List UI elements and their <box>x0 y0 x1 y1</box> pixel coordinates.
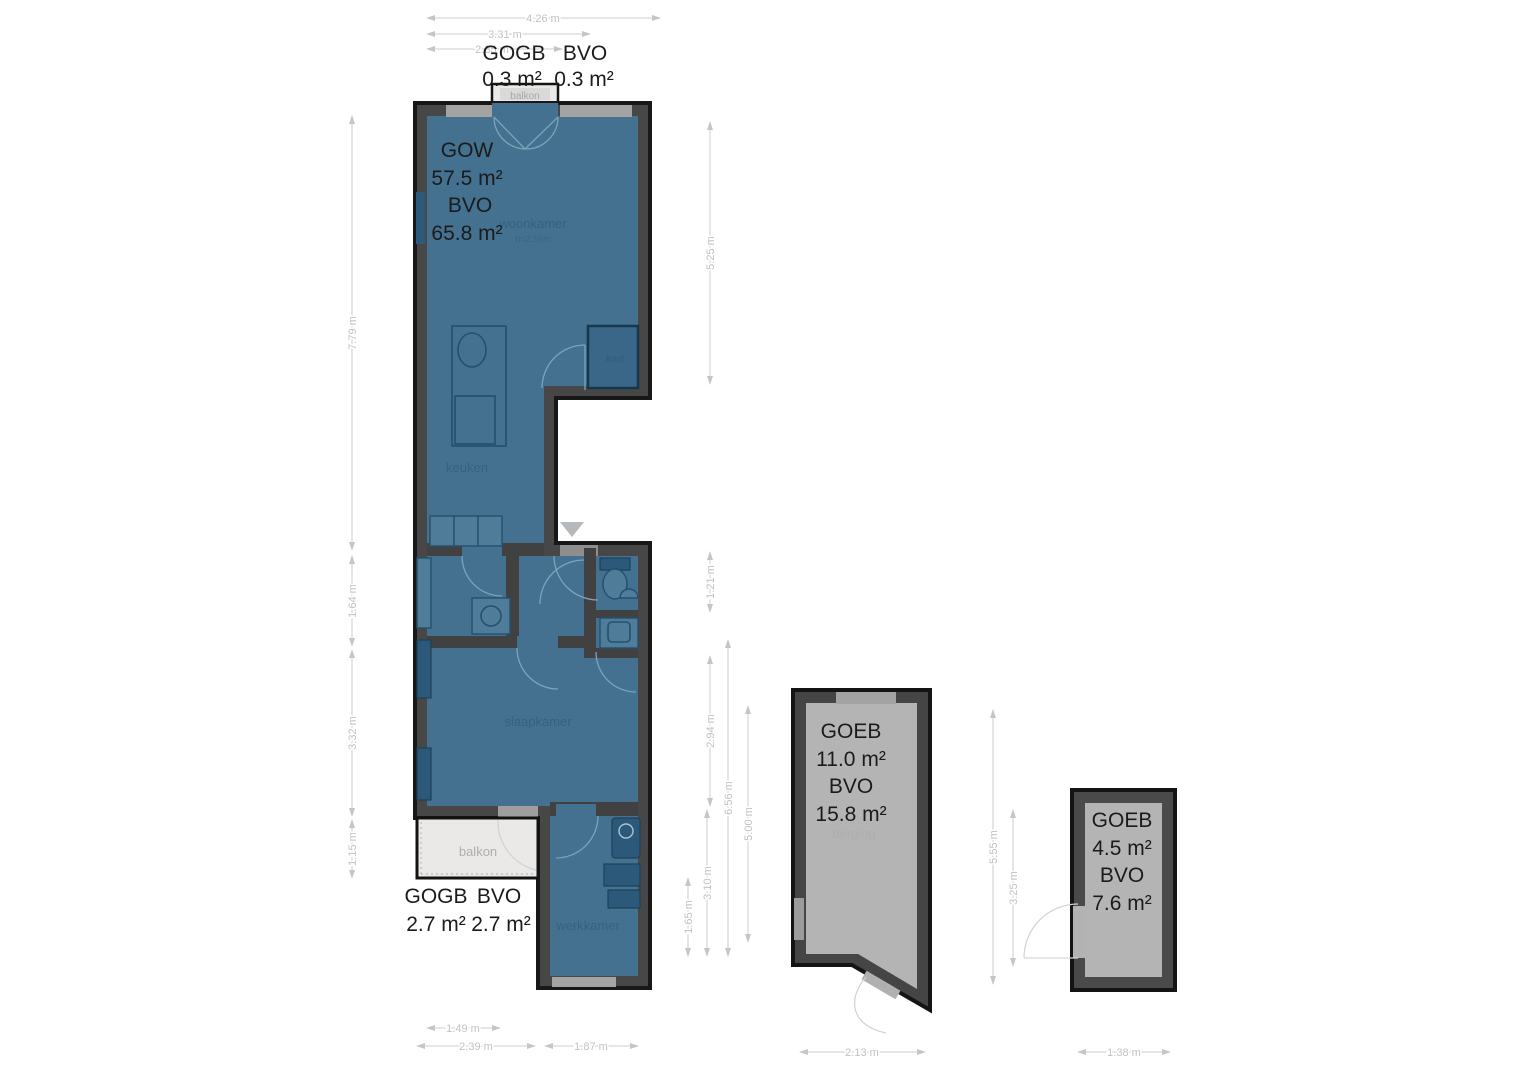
woonkamer-label: woonkamer <box>498 216 567 231</box>
dim-bottom-2: 2.39 m <box>417 1041 535 1053</box>
dim-left-3: 3.32 m <box>347 650 359 816</box>
werkkamer-label: werkkamer <box>555 918 620 933</box>
dim-left-4: 1.15 m <box>347 820 359 878</box>
dim-right-4: 6.56 m <box>723 640 735 956</box>
slaapkamer-label: slaapkamer <box>504 714 572 729</box>
hall-cabinets <box>430 516 502 546</box>
dim-bottom-1: 1.49 m <box>427 1023 500 1035</box>
svg-text:1.87 m: 1.87 m <box>574 1041 608 1053</box>
svg-text:1.21 m: 1.21 m <box>705 565 717 599</box>
dim-storage-bottom: 2.13 m <box>800 1047 925 1059</box>
gow-label: GOW <box>441 139 494 162</box>
storage-plan: GOEB 11.0 m² BVO 15.8 m² berging h=2.69m… <box>793 690 1020 1059</box>
svg-text:7.79 m: 7.79 m <box>347 316 359 350</box>
shed-goeb-value: 4.5 m² <box>1092 837 1152 860</box>
bottom-gogb-label: GOGB <box>404 885 467 908</box>
svg-text:1.15 m: 1.15 m <box>347 832 359 866</box>
dim-left-2: 1.64 m <box>347 556 359 646</box>
balkon-top-label: balkon <box>510 91 539 102</box>
top-bvo-value: 0.3 m² <box>554 68 614 91</box>
balkon-bottom-label: balkon <box>459 844 497 859</box>
svg-text:3.31 m: 3.31 m <box>488 29 522 41</box>
storage-window-top <box>836 692 896 704</box>
svg-text:1.38 m: 1.38 m <box>1107 1047 1141 1059</box>
berging-label: berging <box>832 826 875 841</box>
bvo-label: BVO <box>448 194 492 217</box>
balcony-bottom-door <box>498 806 538 818</box>
storage-goeb-label: GOEB <box>821 720 882 743</box>
balcony-door-opening <box>492 103 558 117</box>
bvo-value: 65.8 m² <box>431 222 502 245</box>
dim-shed-bottom: 1.38 m <box>1078 1047 1170 1059</box>
svg-text:1.49 m: 1.49 m <box>446 1023 480 1035</box>
top-gogb-label: GOGB <box>482 42 545 65</box>
svg-text:5.25 m: 5.25 m <box>705 236 717 270</box>
dim-top-2: 3.31 m <box>427 29 590 41</box>
dim-storage-right-1: 5.55 m <box>988 710 1000 984</box>
svg-text:4.26 m: 4.26 m <box>526 13 560 25</box>
svg-text:5.55 m: 5.55 m <box>988 830 1000 864</box>
radiator <box>416 192 425 244</box>
svg-text:3.25 m: 3.25 m <box>1008 871 1020 905</box>
shed-bvo-label: BVO <box>1100 864 1144 887</box>
shed-door-swing <box>1024 904 1078 958</box>
entrance-arrow-icon <box>560 522 584 537</box>
gow-value: 57.5 m² <box>431 167 502 190</box>
berging-height-label: h=2.69m <box>836 843 871 853</box>
dim-right-2: 1.21 m <box>705 552 717 612</box>
svg-text:2.13 m: 2.13 m <box>845 1047 879 1059</box>
shed-door <box>1073 906 1085 958</box>
main-apartment-plan: balkon <box>415 84 650 988</box>
window-top-right <box>560 105 632 117</box>
dim-right-3: 2.94 m <box>705 656 717 806</box>
woonkamer-height-label: h=2.56m <box>515 234 550 244</box>
floorplan-drawing: balkon <box>0 0 1527 1080</box>
balcony-bottom: balkon <box>417 818 538 878</box>
bottom-bvo-value: 2.7 m² <box>471 913 531 936</box>
dim-right-1: 5.25 m <box>705 122 717 384</box>
dim-top-1: 4.26 m <box>427 13 660 25</box>
window-top-left <box>446 105 492 117</box>
svg-text:1.65 m: 1.65 m <box>683 900 695 934</box>
dim-left-1: 7.79 m <box>347 116 359 550</box>
kast-label: kast <box>606 354 625 365</box>
svg-text:6.56 m: 6.56 m <box>723 781 735 815</box>
top-bvo-label: BVO <box>563 42 607 65</box>
shed-goeb-label: GOEB <box>1092 809 1153 832</box>
svg-text:2.39 m: 2.39 m <box>459 1041 493 1053</box>
dim-right-6: 3.10 m <box>702 810 714 956</box>
svg-text:5.00 m: 5.00 m <box>743 807 755 841</box>
bottom-gogb-value: 2.7 m² <box>406 913 466 936</box>
svg-text:3.10 m: 3.10 m <box>702 866 714 900</box>
svg-text:2.94 m: 2.94 m <box>705 714 717 748</box>
top-gogb-value: 0.3 m² <box>482 68 542 91</box>
window-werkkamer <box>552 977 616 987</box>
keuken-label: keuken <box>446 460 488 475</box>
shed-bvo-value: 7.6 m² <box>1092 892 1152 915</box>
dim-bottom-3: 1.87 m <box>545 1041 638 1053</box>
shed-plan: GOEB 4.5 m² BVO 7.6 m² 1.38 m <box>1024 790 1175 1059</box>
dim-storage-right-2: 3.25 m <box>1008 810 1020 966</box>
floorplan-canvas: balkon <box>0 0 1527 1080</box>
storage-bvo-value: 15.8 m² <box>815 803 886 826</box>
dim-right-5: 5.00 m <box>743 706 755 942</box>
svg-text:1.64 m: 1.64 m <box>347 584 359 618</box>
dim-right-7: 1.65 m <box>683 878 695 956</box>
bottom-bvo-label: BVO <box>477 885 521 908</box>
storage-goeb-value: 11.0 m² <box>816 748 886 771</box>
storage-bvo-label: BVO <box>829 775 873 798</box>
storage-window-left <box>794 898 804 940</box>
svg-text:3.32 m: 3.32 m <box>347 716 359 750</box>
